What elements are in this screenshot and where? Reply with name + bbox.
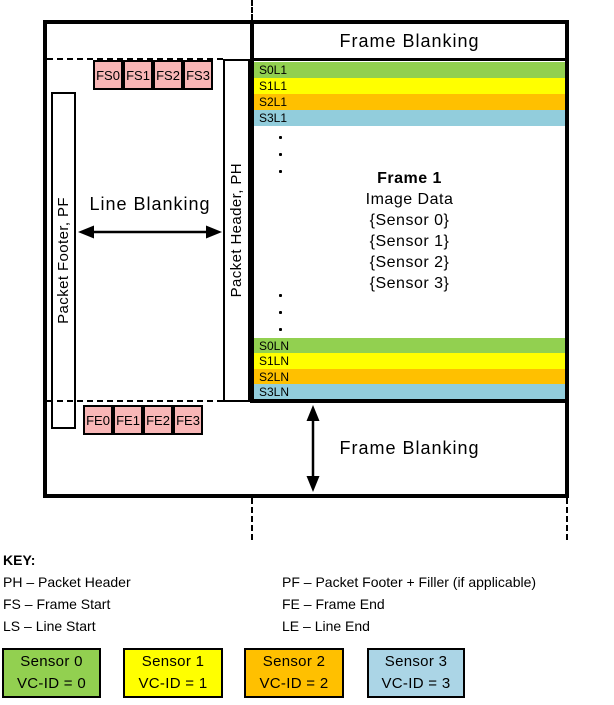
legend-sensor-2: Sensor 2 VC-ID = 2 — [244, 648, 344, 698]
line-label: S1L1 — [259, 79, 287, 93]
top-frame-blanking-label: Frame Blanking — [339, 31, 479, 52]
line-label: S3LN — [259, 385, 289, 399]
dashed-line-bottom-right-vertical — [566, 498, 568, 540]
dot — [279, 294, 282, 297]
key-title: KEY: — [3, 549, 35, 571]
packet-footer-label: Packet Footer, PF — [55, 197, 72, 324]
key-entry: LE – Line End — [282, 615, 370, 637]
legend-vc-id: VC-ID = 3 — [382, 673, 451, 695]
legend-sensor-name: Sensor 0 — [20, 651, 82, 673]
frame-end-box: FE2 — [143, 405, 173, 435]
key-entry: FS – Frame Start — [3, 593, 110, 615]
frame-text-line: {Sensor 1} — [254, 231, 565, 252]
frame-structure-diagram: Frame Blanking S0L1 S1L1 S2L1 S3L1 Frame… — [0, 0, 614, 705]
sensor-line-row: S3LN — [254, 384, 565, 399]
line-label: S1LN — [259, 354, 289, 368]
frame-end-box: FE1 — [113, 405, 143, 435]
frame-text-line: {Sensor 0} — [254, 210, 565, 231]
bottom-frame-blanking-label: Frame Blanking — [254, 438, 565, 459]
line-label: S3L1 — [259, 111, 287, 125]
frame-start-box: FS1 — [123, 60, 153, 90]
legend-sensor-3: Sensor 3 VC-ID = 3 — [367, 648, 465, 698]
frame-start-box: FS0 — [93, 60, 123, 90]
line-blanking-arrow — [78, 224, 222, 240]
packet-header-column: Packet Header, PH — [223, 59, 250, 402]
frame-end-box: FE0 — [83, 405, 113, 435]
frame-start-box: FS2 — [153, 60, 183, 90]
dot — [279, 136, 282, 139]
frame-start-box: FS3 — [183, 60, 213, 90]
frame-title: Frame 1 — [254, 168, 565, 189]
dot — [279, 311, 282, 314]
frame-text-line: {Sensor 3} — [254, 273, 565, 294]
key-entry: PH – Packet Header — [3, 571, 131, 593]
dashed-line-bottom-left-vertical — [251, 498, 253, 540]
line-label: S0LN — [259, 339, 289, 353]
line-label: S2L1 — [259, 95, 287, 109]
legend-sensor-name: Sensor 2 — [263, 651, 325, 673]
frame-text-line: {Sensor 2} — [254, 252, 565, 273]
key-entry: LS – Line Start — [3, 615, 96, 637]
frame-end-label: FE3 — [176, 413, 200, 428]
packet-header-label: Packet Header, PH — [228, 163, 245, 297]
sensor-line-row: S1LN — [254, 353, 565, 369]
frame-end-label: FE1 — [116, 413, 140, 428]
legend-vc-id: VC-ID = 1 — [139, 673, 208, 695]
dashed-line-top-vertical — [251, 0, 253, 20]
frame-end-label: FE2 — [146, 413, 170, 428]
top-frame-blanking-box: Frame Blanking — [250, 20, 569, 61]
legend-vc-id: VC-ID = 0 — [17, 673, 86, 695]
dashed-line-bottom-horizontal — [47, 400, 223, 402]
line-label: S0L1 — [259, 63, 287, 77]
frame-start-label: FS0 — [96, 68, 120, 83]
legend-sensor-1: Sensor 1 VC-ID = 1 — [123, 648, 223, 698]
sensor-line-row: S3L1 — [254, 110, 565, 126]
legend-vc-id: VC-ID = 2 — [260, 673, 329, 695]
sensor-line-row: S1L1 — [254, 78, 565, 94]
frame-text-line: Image Data — [254, 189, 565, 210]
sensor-line-row: S2L1 — [254, 94, 565, 110]
line-label: S2LN — [259, 370, 289, 384]
legend-sensor-name: Sensor 3 — [385, 651, 447, 673]
legend-sensor-0: Sensor 0 VC-ID = 0 — [2, 648, 101, 698]
line-blanking-label: Line Blanking — [79, 194, 221, 215]
dot — [279, 328, 282, 331]
sensor-line-row: S0LN — [254, 338, 565, 353]
packet-footer-column: Packet Footer, PF — [51, 92, 76, 429]
frame-center-text: Frame 1 Image Data {Sensor 0} {Sensor 1}… — [254, 168, 565, 294]
frame-end-label: FE0 — [86, 413, 110, 428]
frame-start-label: FS1 — [126, 68, 150, 83]
legend-sensor-name: Sensor 1 — [142, 651, 204, 673]
key-entry: FE – Frame End — [282, 593, 385, 615]
sensor-line-row: S0L1 — [254, 62, 565, 78]
sensor-line-row: S2LN — [254, 369, 565, 384]
frame-start-label: FS2 — [156, 68, 180, 83]
key-entry: PF – Packet Footer + Filler (if applicab… — [282, 571, 536, 593]
frame-start-label: FS3 — [186, 68, 210, 83]
frame-blanking-arrow — [305, 405, 321, 492]
frame-end-box: FE3 — [173, 405, 203, 435]
dot — [279, 153, 282, 156]
